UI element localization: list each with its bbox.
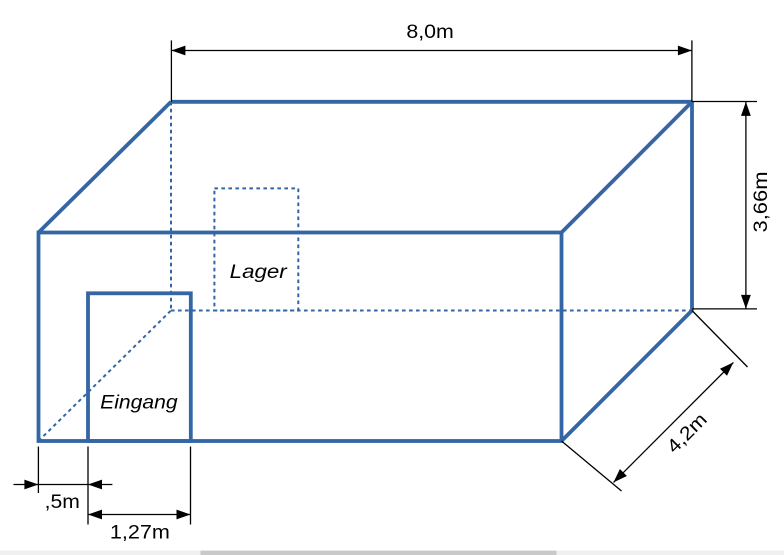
svg-text:1,27m: 1,27m bbox=[110, 522, 170, 543]
svg-text:,5m: ,5m bbox=[45, 492, 80, 513]
svg-text:3,66m: 3,66m bbox=[751, 172, 772, 233]
svg-text:Lager: Lager bbox=[230, 262, 288, 283]
svg-text:8,0m: 8,0m bbox=[406, 22, 454, 43]
svg-text:Eingang: Eingang bbox=[100, 393, 178, 414]
